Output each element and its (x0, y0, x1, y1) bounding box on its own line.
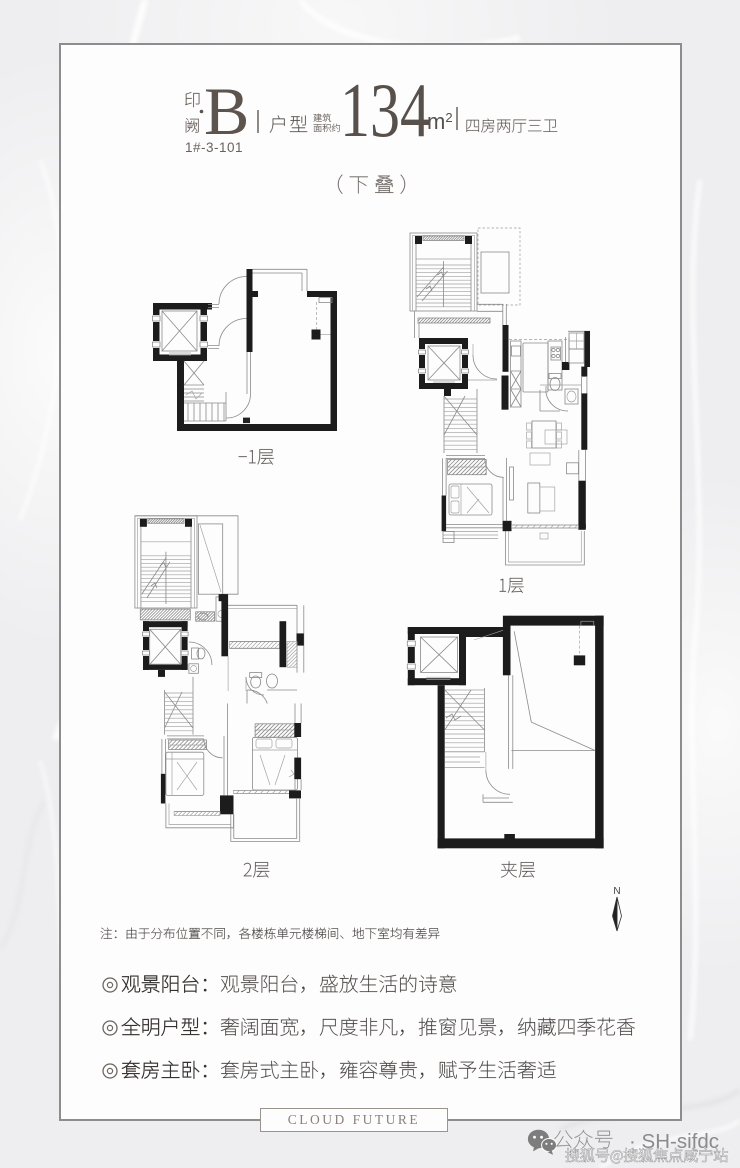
svg-text:N: N (613, 886, 620, 897)
